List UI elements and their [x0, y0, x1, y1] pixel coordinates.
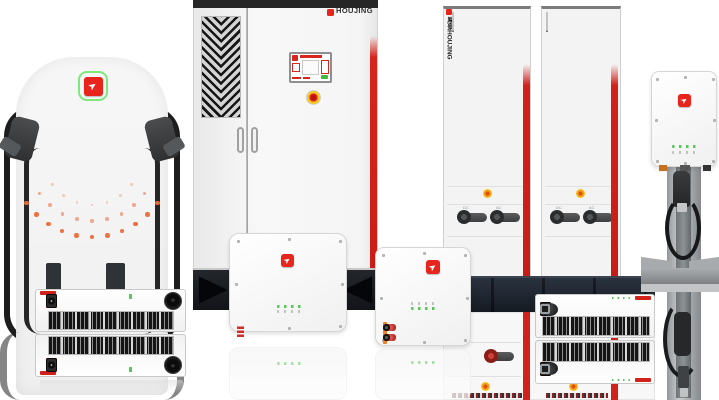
status-dot	[90, 219, 94, 223]
switch-knob-icon	[484, 349, 498, 363]
screw-icon	[466, 297, 469, 300]
switch-knob-icon	[550, 210, 564, 224]
screw-icon	[380, 297, 383, 300]
hmi-red-bar	[303, 77, 310, 79]
status-dot	[34, 212, 39, 217]
screw-icon	[288, 238, 291, 241]
status-dot	[24, 201, 29, 206]
rack-power-module	[452, 12, 454, 32]
status-dot	[91, 204, 94, 207]
circle-dark2-connector	[383, 324, 390, 331]
screw-icon	[235, 283, 238, 286]
black-connector	[46, 358, 57, 372]
status-dot	[143, 192, 147, 196]
inverter-box-body	[375, 247, 471, 346]
module-unit	[535, 294, 655, 338]
logo-arrow-icon: ➤	[427, 261, 438, 273]
status-dot	[90, 235, 95, 240]
status-dot	[38, 192, 42, 196]
screw-icon	[339, 325, 342, 328]
rack-power-module	[546, 12, 548, 32]
hmi-main-panel	[302, 60, 319, 75]
screw-icon	[339, 240, 342, 243]
status-dot	[133, 222, 138, 227]
screw-icon	[713, 119, 716, 122]
houjing-logo-icon: ➤	[426, 260, 440, 274]
hmi-logo-icon	[292, 55, 298, 61]
crossbar-lower	[641, 284, 719, 292]
status-dot	[130, 183, 133, 186]
panel-hairline	[447, 236, 527, 237]
rack-tower-1	[443, 6, 531, 278]
crossbar	[641, 268, 719, 284]
fan-icon	[164, 292, 182, 310]
cabinet-door-seam	[246, 8, 248, 269]
panel-hairline	[545, 186, 617, 187]
red-accent-stripe	[523, 312, 530, 400]
status-dot	[60, 229, 65, 234]
square-silver-connector	[540, 304, 550, 314]
ventilation-grille	[201, 16, 241, 118]
module-label	[635, 378, 651, 382]
charging-gun-tip	[680, 388, 688, 397]
screw-icon	[712, 78, 715, 81]
status-leds-dim	[411, 302, 435, 305]
switch-knob-icon	[583, 210, 597, 224]
indicator-lamp	[483, 189, 492, 198]
panel-hairline	[447, 204, 527, 205]
emergency-stop-button	[306, 90, 321, 105]
status-leds	[277, 305, 303, 308]
screw-icon	[464, 339, 467, 342]
hmi-header	[300, 55, 322, 58]
panel-hairline	[447, 186, 527, 187]
product-showcase: HOUJING 厚景HOUJING	[0, 0, 719, 400]
status-dot	[61, 212, 65, 216]
door-handle-left	[237, 127, 244, 153]
status-leds	[672, 145, 697, 148]
module-unit-flipped	[535, 340, 655, 384]
dc-rotary-switch	[459, 213, 487, 222]
status-leds-dim	[672, 151, 697, 154]
ac-rotary-switch	[492, 213, 520, 222]
houjing-logo-icon	[327, 9, 334, 16]
screw-icon	[684, 76, 687, 79]
vent-band	[48, 336, 174, 355]
charging-cable	[665, 196, 701, 260]
red-accent-stripe	[611, 64, 618, 278]
charging-gun-reflection	[678, 366, 689, 388]
status-leds-reflection	[277, 362, 303, 365]
hmi-side-panel	[321, 60, 329, 74]
indicator-lamp	[481, 382, 490, 391]
brand-label: HOUJING	[336, 6, 373, 15]
hmi-cell	[292, 63, 300, 72]
screw-icon	[288, 327, 291, 330]
module-unit-flipped	[35, 334, 186, 377]
dc-rotary-switch	[552, 213, 580, 222]
square-silver-connector	[540, 364, 550, 374]
status-dot	[74, 233, 79, 238]
module-reflection	[40, 380, 183, 393]
status-leds-reflection	[411, 361, 435, 364]
status-dot	[155, 201, 160, 206]
box-reflection	[229, 347, 347, 400]
status-dot	[106, 201, 109, 204]
status-dot	[120, 229, 125, 234]
module-unit	[35, 289, 186, 332]
red-accent-stripe	[370, 36, 377, 272]
status-dot	[76, 201, 79, 204]
status-leds-dim	[277, 310, 303, 313]
status-leds	[411, 307, 435, 310]
terminal-strip	[546, 393, 608, 398]
gland-gray	[680, 165, 690, 171]
rotary-switch-reflection	[486, 352, 514, 361]
brand-label-vertical: 厚景HOUJING	[445, 17, 452, 60]
box-reflection	[375, 349, 471, 400]
status-dot	[119, 194, 122, 197]
status-dot	[145, 212, 150, 217]
screw-icon	[655, 119, 658, 122]
gland-orange	[659, 165, 667, 171]
black-connector	[46, 294, 57, 308]
vent-band	[542, 316, 650, 336]
hmi-display	[289, 52, 332, 83]
led-green	[129, 367, 132, 372]
screw-icon	[423, 341, 426, 344]
status-dot	[75, 217, 79, 221]
inverter-box-body	[229, 233, 347, 332]
cable-reflection	[0, 332, 24, 400]
screw-icon	[712, 160, 715, 163]
gland-dark	[703, 165, 711, 171]
status-dot	[132, 203, 136, 207]
indicator-lamp	[576, 189, 585, 198]
houjing-logo-icon: ➤	[281, 254, 294, 267]
rack-tower-2	[541, 6, 621, 278]
screw-icon	[656, 78, 659, 81]
status-dot	[51, 183, 54, 186]
charging-gun-reflection	[674, 312, 691, 356]
screw-icon	[656, 160, 659, 163]
pillar-vent-slot	[46, 263, 61, 291]
status-dot	[105, 233, 110, 238]
fan-icon	[164, 356, 182, 374]
status-dot-arcs	[16, 57, 168, 297]
status-dot	[62, 194, 65, 197]
houjing-logo-icon: ➤	[678, 94, 691, 107]
status-dot	[48, 203, 52, 207]
hmi-red-bar	[292, 77, 301, 79]
pillar-vent-slot	[106, 263, 125, 291]
screw-icon	[464, 254, 467, 257]
screw-icon	[423, 252, 426, 255]
vent-band	[48, 311, 174, 330]
status-dot	[46, 222, 51, 227]
module-label	[635, 296, 651, 300]
logo-arrow-icon: ➤	[282, 255, 292, 265]
vent-band	[542, 342, 650, 362]
switch-knob-icon	[490, 210, 504, 224]
micro-leds	[612, 297, 634, 299]
led-green	[129, 294, 132, 299]
status-dot	[120, 212, 124, 216]
panel-hairline	[545, 236, 617, 237]
screw-icon	[382, 254, 385, 257]
plinth-vent-icon	[196, 273, 232, 307]
screw-icon	[341, 283, 344, 286]
hmi-green-button	[321, 75, 328, 79]
ac-rotary-switch	[585, 213, 613, 222]
screw-icon	[237, 240, 240, 243]
circle-dark2-connector	[383, 334, 390, 341]
red-accent-stripe	[523, 64, 530, 278]
micro-leds	[612, 379, 634, 381]
door-handle-right	[251, 127, 258, 153]
status-dot	[105, 217, 109, 221]
logo-arrow-icon: ➤	[679, 95, 689, 105]
switch-knob-icon	[457, 210, 471, 224]
red-striped-connector	[237, 325, 244, 337]
